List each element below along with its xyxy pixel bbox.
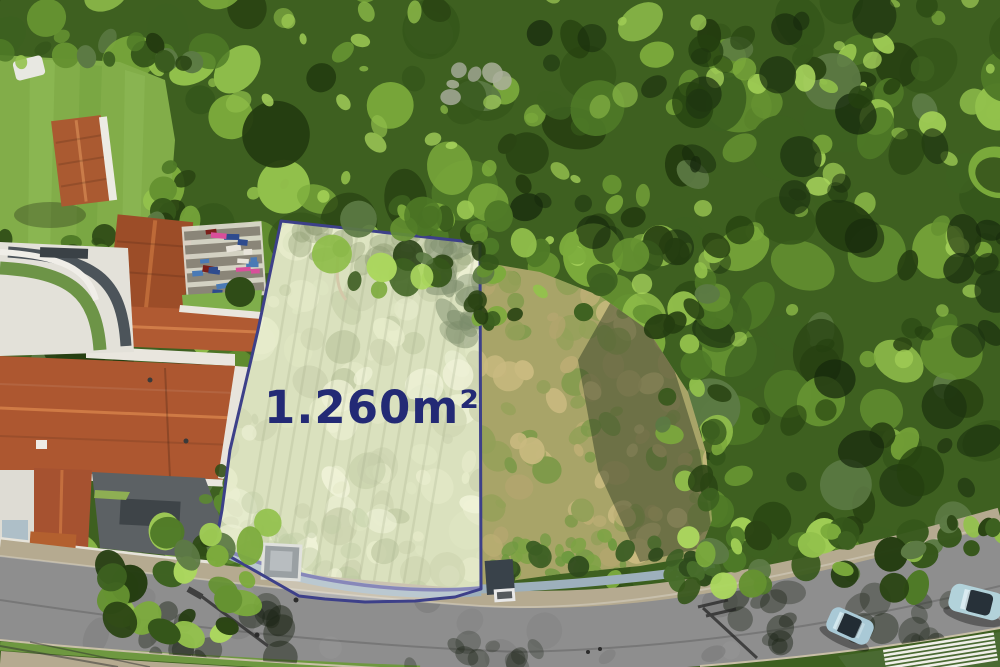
aerial-photo: 1.260m² — [0, 0, 1000, 667]
chimney — [36, 440, 47, 449]
garden-tree — [225, 277, 255, 307]
garden-shed — [51, 114, 117, 206]
lot-area-label: 1.260m² — [264, 381, 480, 434]
curved-terrace — [0, 242, 134, 356]
aerial-photo-canvas: 1.260m² — [0, 0, 1000, 667]
